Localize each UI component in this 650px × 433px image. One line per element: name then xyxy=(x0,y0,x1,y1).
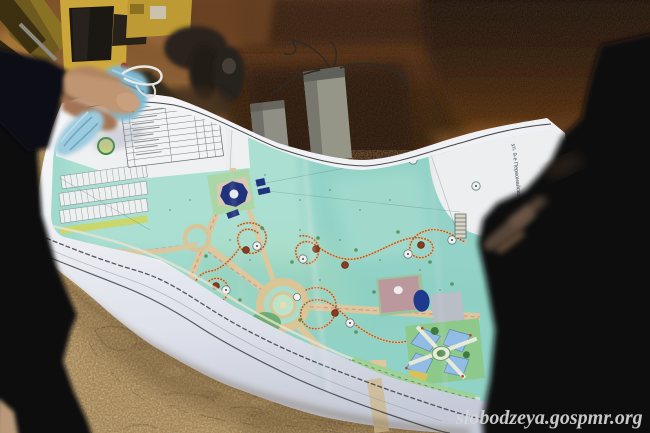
svg-text:slobodzeya.gospmr.org: slobodzeya.gospmr.org xyxy=(455,407,643,429)
